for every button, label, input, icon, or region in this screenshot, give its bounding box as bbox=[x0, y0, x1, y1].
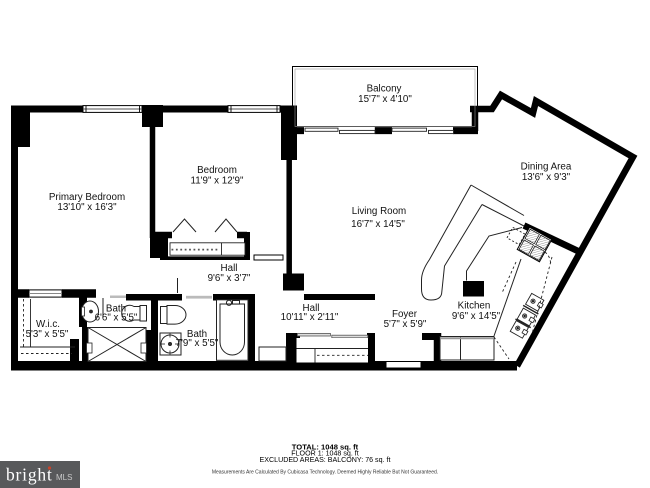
svg-text:6'6" x 5'5": 6'6" x 5'5" bbox=[95, 313, 138, 324]
svg-text:EXCLUDED AREAS: BALCONY: 76 sq: EXCLUDED AREAS: BALCONY: 76 sq. ft bbox=[260, 456, 391, 464]
svg-text:Dining Area: Dining Area bbox=[521, 162, 572, 173]
svg-text:9'6" x 3'7": 9'6" x 3'7" bbox=[208, 273, 251, 284]
svg-text:5'7" x 5'9": 5'7" x 5'9" bbox=[384, 319, 427, 330]
svg-text:Measurements Are Calculated By: Measurements Are Calculated By Cubicasa … bbox=[212, 470, 438, 476]
svg-text:Balcony: Balcony bbox=[367, 84, 402, 95]
svg-text:MLS: MLS bbox=[56, 473, 72, 482]
svg-text:5'3" x 5'5": 5'3" x 5'5" bbox=[26, 329, 69, 340]
svg-text:13'10" x 16'3": 13'10" x 16'3" bbox=[57, 202, 117, 213]
svg-text:15'7" x 4'10": 15'7" x 4'10" bbox=[358, 94, 412, 105]
svg-text:16'7" x 14'5": 16'7" x 14'5" bbox=[351, 219, 405, 230]
svg-text:7'9" x 5'5": 7'9" x 5'5" bbox=[176, 338, 219, 349]
svg-text:10'11" x 2'11": 10'11" x 2'11" bbox=[281, 312, 339, 323]
svg-text:Living Room: Living Room bbox=[352, 206, 406, 217]
svg-text:11'9" x 12'9": 11'9" x 12'9" bbox=[190, 176, 244, 187]
svg-text:13'6" x 9'3": 13'6" x 9'3" bbox=[522, 172, 571, 183]
svg-text:9'6" x 14'5": 9'6" x 14'5" bbox=[452, 311, 501, 322]
svg-text:bright: bright bbox=[6, 465, 53, 485]
svg-text:Bedroom: Bedroom bbox=[197, 165, 237, 176]
